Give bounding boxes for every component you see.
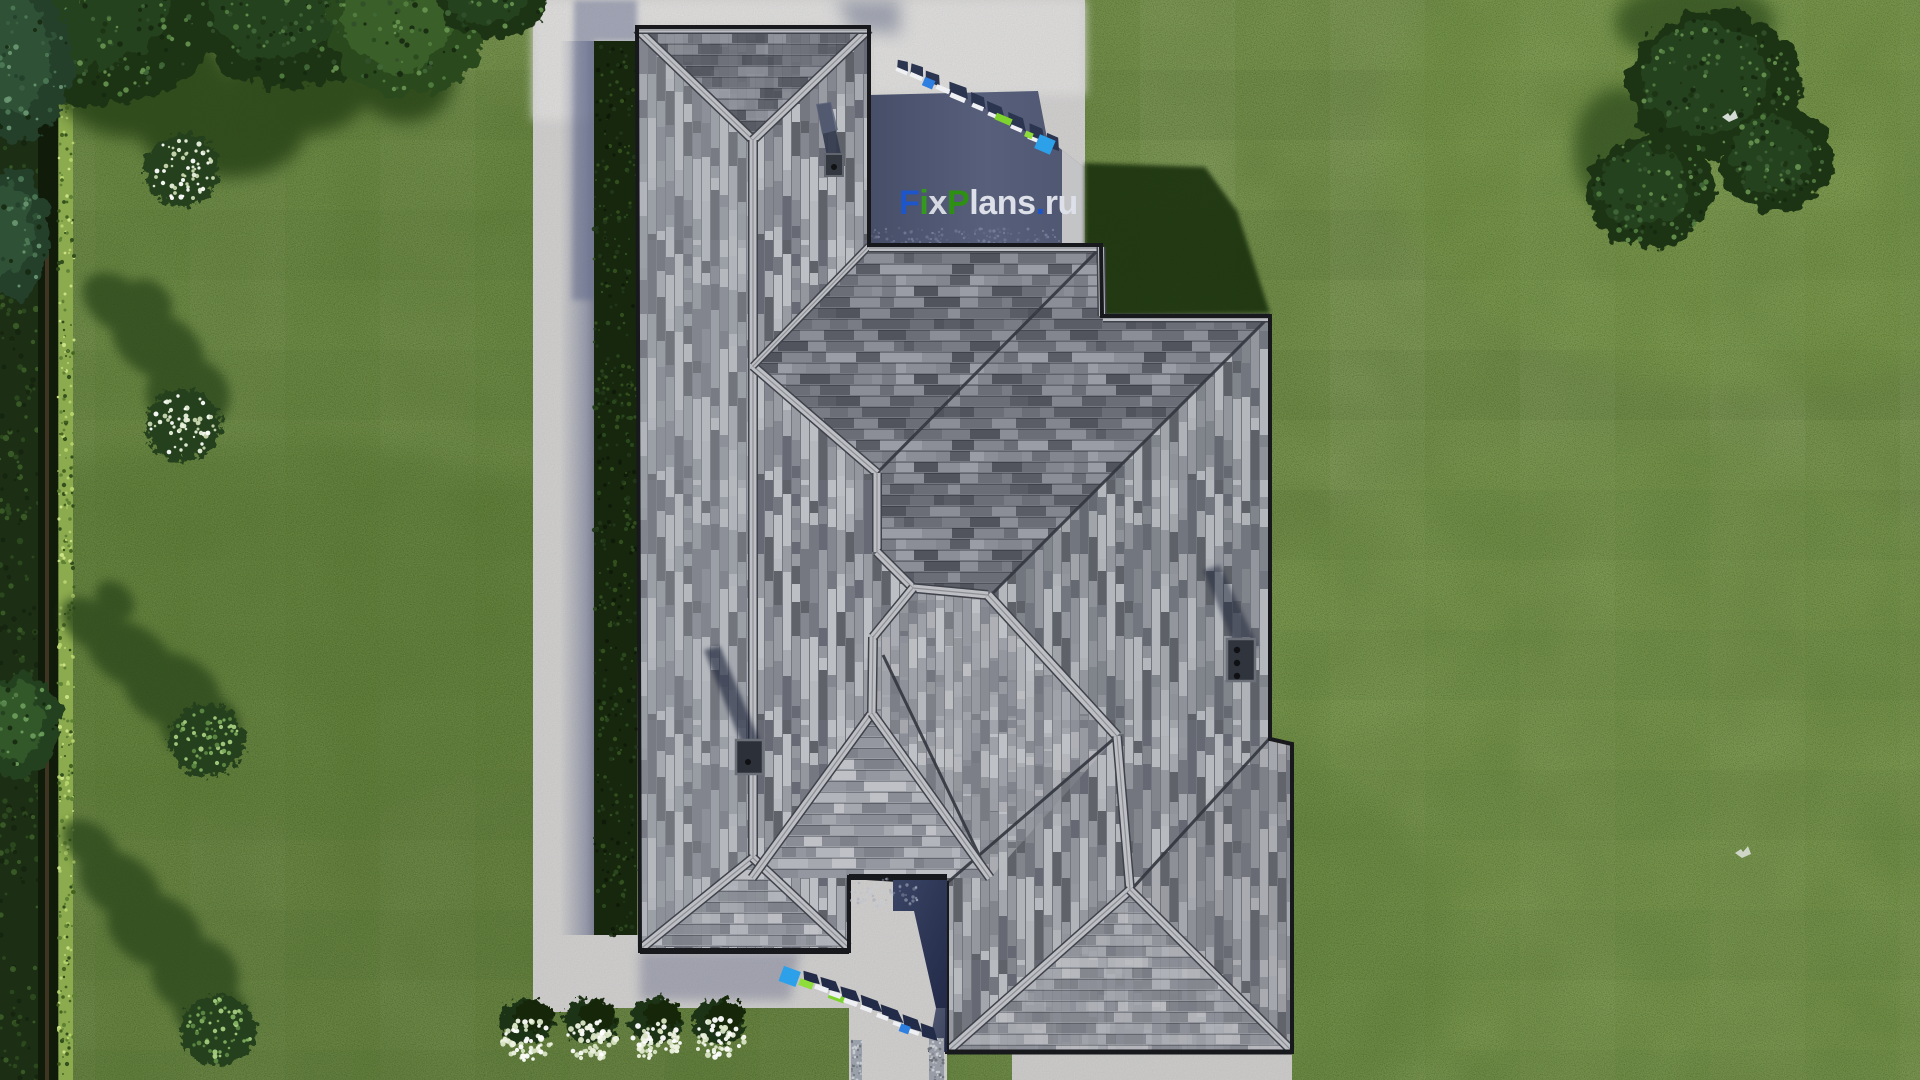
svg-text:FixPlans.ru: FixPlans.ru (899, 184, 1078, 222)
